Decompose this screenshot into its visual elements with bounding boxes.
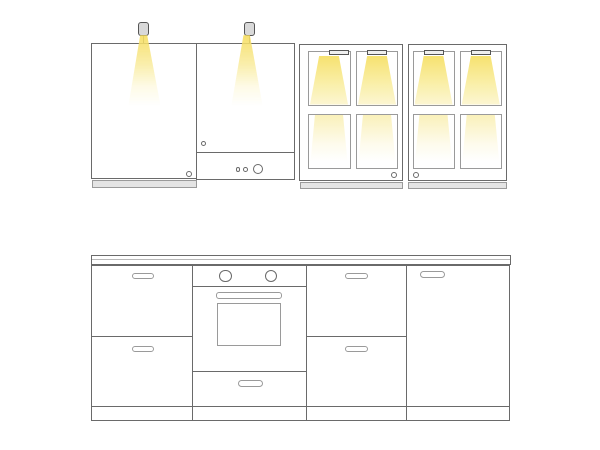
plinth	[91, 406, 510, 421]
under-cabinet-light-strip-left	[92, 180, 198, 188]
glass-pane-upper-left	[413, 51, 455, 106]
glass-pane-upper-right	[356, 51, 398, 106]
pane-light-beam	[462, 56, 500, 105]
plinth-divider	[406, 407, 407, 420]
pane-light-bar-icon	[329, 50, 349, 55]
oven-panel-divider	[192, 286, 306, 287]
door-knob-icon	[413, 172, 419, 178]
drawer-handle-icon	[132, 346, 155, 352]
pane-light-bar-icon	[424, 50, 444, 55]
cabinet-divider	[406, 266, 407, 406]
pane-light-bar-icon	[471, 50, 491, 55]
pane-light-glow	[358, 115, 396, 168]
drawer-divider	[92, 336, 193, 337]
pane-light-glow	[415, 115, 453, 168]
door-knob-icon	[391, 172, 397, 178]
kitchen-lighting-diagram	[0, 0, 600, 450]
door-knob-icon	[201, 141, 207, 147]
control-panel	[196, 152, 296, 180]
control-knob-small-1	[236, 167, 241, 172]
pane-light-beam	[310, 56, 348, 105]
oven-handle-bar	[216, 292, 282, 299]
drawer-handle-icon	[132, 273, 155, 279]
countertop	[91, 255, 511, 266]
cabinet-divider	[192, 266, 193, 406]
oven-window	[217, 303, 281, 347]
drawer-handle-icon	[345, 346, 368, 352]
pane-light-glow	[462, 115, 500, 168]
glass-cabinet-left	[299, 44, 403, 181]
glass-pane-upper-left	[308, 51, 351, 106]
drawer-handle-icon	[238, 380, 263, 387]
glass-cabinet-right	[408, 44, 508, 181]
oven-knob-right	[265, 270, 278, 283]
control-knob-small-2	[243, 167, 248, 172]
spotlight-fixture-icon	[244, 22, 255, 36]
glass-pane-upper-right	[460, 51, 503, 106]
glass-pane-lower-left	[308, 114, 351, 169]
spotlight-fixture-icon	[138, 22, 149, 36]
drawer-divider	[306, 336, 406, 337]
glass-pane-lower-right	[460, 114, 503, 169]
door-knob-icon	[186, 171, 192, 177]
pane-light-bar-icon	[367, 50, 387, 55]
base-cabinet-row	[91, 265, 510, 407]
glass-pane-lower-left	[413, 114, 455, 169]
under-cabinet-light-strip-glass-left	[300, 182, 403, 189]
plinth-divider	[192, 407, 193, 420]
glass-pane-lower-right	[356, 114, 398, 169]
under-cabinet-light-strip-glass-right	[408, 182, 508, 189]
door-handle-icon	[420, 271, 445, 278]
pane-light-beam	[358, 56, 396, 105]
oven-door-divider	[192, 371, 306, 372]
drawer-handle-icon	[345, 273, 368, 279]
control-knob-large	[253, 164, 263, 174]
pane-light-beam	[415, 56, 453, 105]
countertop-edge-line	[92, 259, 510, 260]
pane-light-glow	[310, 115, 348, 168]
plinth-divider	[306, 407, 307, 420]
oven-knob-left	[219, 270, 232, 283]
